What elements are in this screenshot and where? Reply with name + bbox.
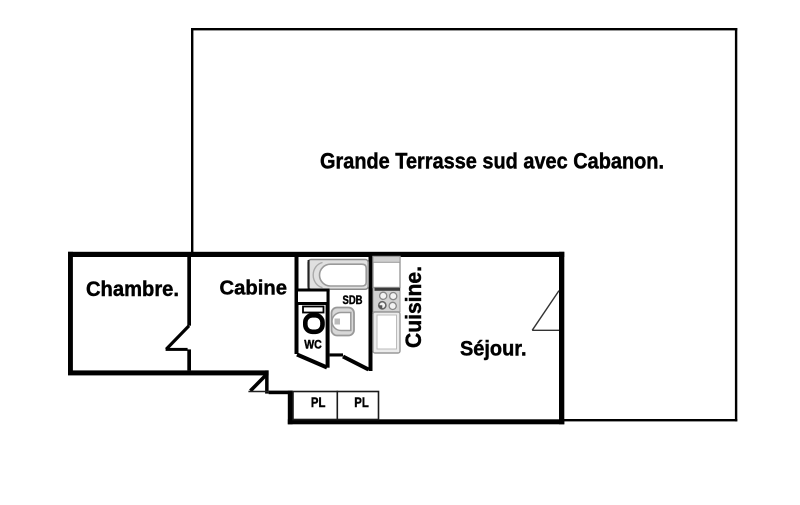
svg-text:SDB: SDB bbox=[343, 295, 363, 307]
svg-text:PL: PL bbox=[354, 394, 369, 410]
svg-text:Cuisine.: Cuisine. bbox=[401, 266, 426, 348]
svg-text:Grande Terrasse sud avec Caban: Grande Terrasse sud avec Cabanon. bbox=[320, 148, 664, 173]
svg-text:Cabine: Cabine bbox=[220, 277, 288, 300]
svg-text:Chambre.: Chambre. bbox=[86, 278, 179, 301]
svg-text:WC: WC bbox=[304, 338, 322, 352]
svg-text:PL: PL bbox=[311, 394, 326, 410]
svg-text:Séjour.: Séjour. bbox=[460, 338, 527, 361]
